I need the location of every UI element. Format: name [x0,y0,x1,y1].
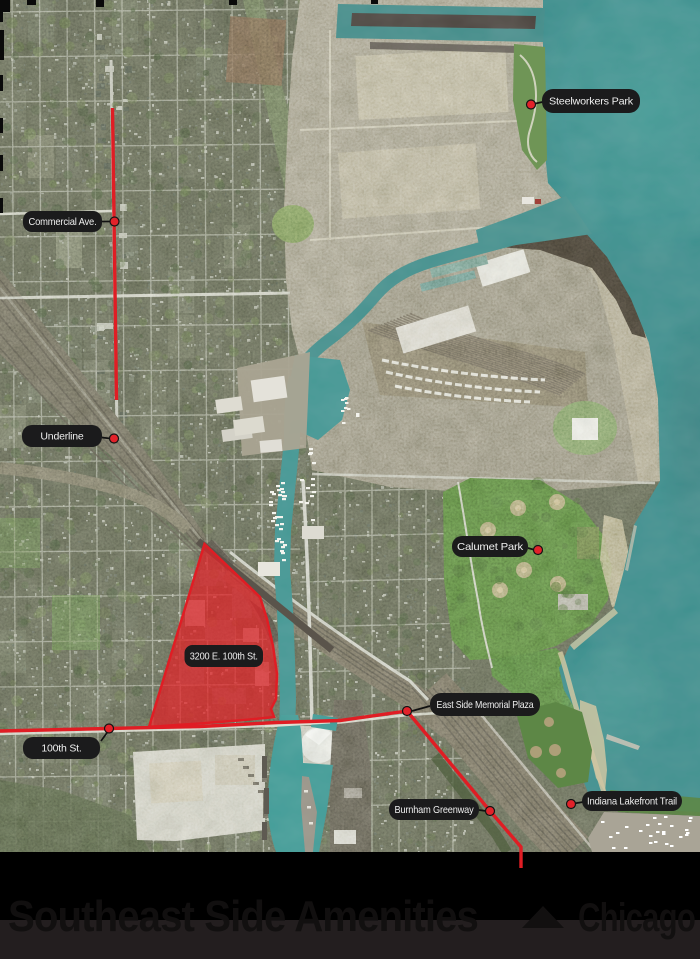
svg-text:100th St.: 100th St. [41,743,81,755]
svg-text:Indiana Lakefront Trail: Indiana Lakefront Trail [587,796,677,808]
svg-text:3200 E. 100th St.: 3200 E. 100th St. [190,651,258,663]
svg-text:Commercial Ave.: Commercial Ave. [29,216,97,228]
svg-text:East Side Memorial Plaza: East Side Memorial Plaza [437,699,534,711]
svg-text:Calumet Park: Calumet Park [457,541,524,553]
svg-text:Underline: Underline [40,431,84,443]
svg-text:Chicago: Chicago [578,896,695,940]
svg-text:Steelworkers Park: Steelworkers Park [549,96,634,108]
svg-text:Burnham Greenway: Burnham Greenway [395,804,475,816]
svg-text:Southeast Side Amenities: Southeast Side Amenities [8,892,478,941]
